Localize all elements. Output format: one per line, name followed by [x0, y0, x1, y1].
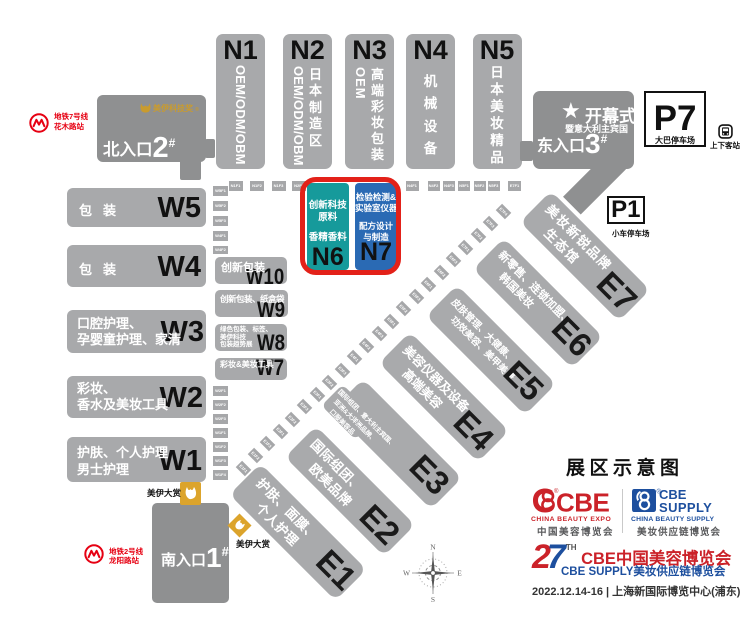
- svg-text:®: ®: [554, 488, 559, 495]
- svg-text:E: E: [457, 569, 462, 578]
- svg-text:®: ®: [657, 489, 662, 496]
- svg-text:W: W: [403, 569, 411, 578]
- svg-text:S: S: [431, 595, 435, 603]
- svg-text:CBE: CBE: [556, 488, 610, 516]
- svg-text:SUPPLY: SUPPLY: [659, 500, 712, 515]
- svg-text:N: N: [430, 543, 436, 552]
